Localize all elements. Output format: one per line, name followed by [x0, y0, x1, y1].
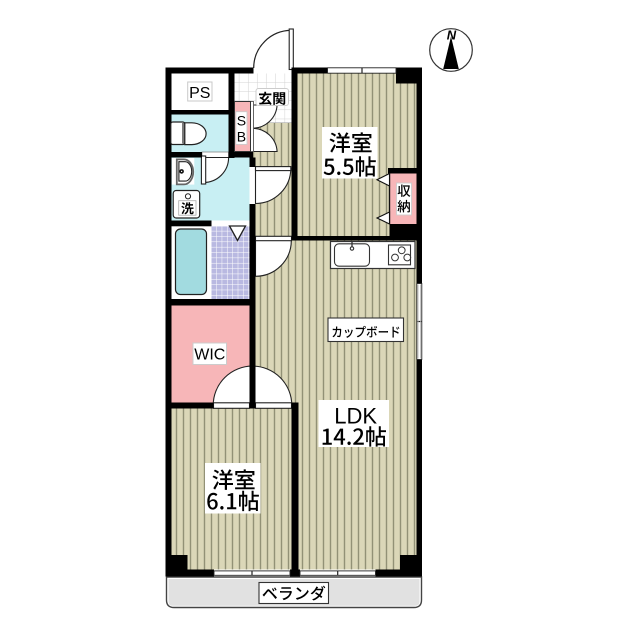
- svg-text:N: N: [447, 28, 457, 43]
- svg-text:WIC: WIC: [194, 347, 225, 364]
- svg-text:B: B: [237, 129, 246, 145]
- svg-text:LDK: LDK: [334, 403, 377, 428]
- svg-text:S: S: [237, 113, 246, 129]
- svg-text:PS: PS: [189, 85, 210, 102]
